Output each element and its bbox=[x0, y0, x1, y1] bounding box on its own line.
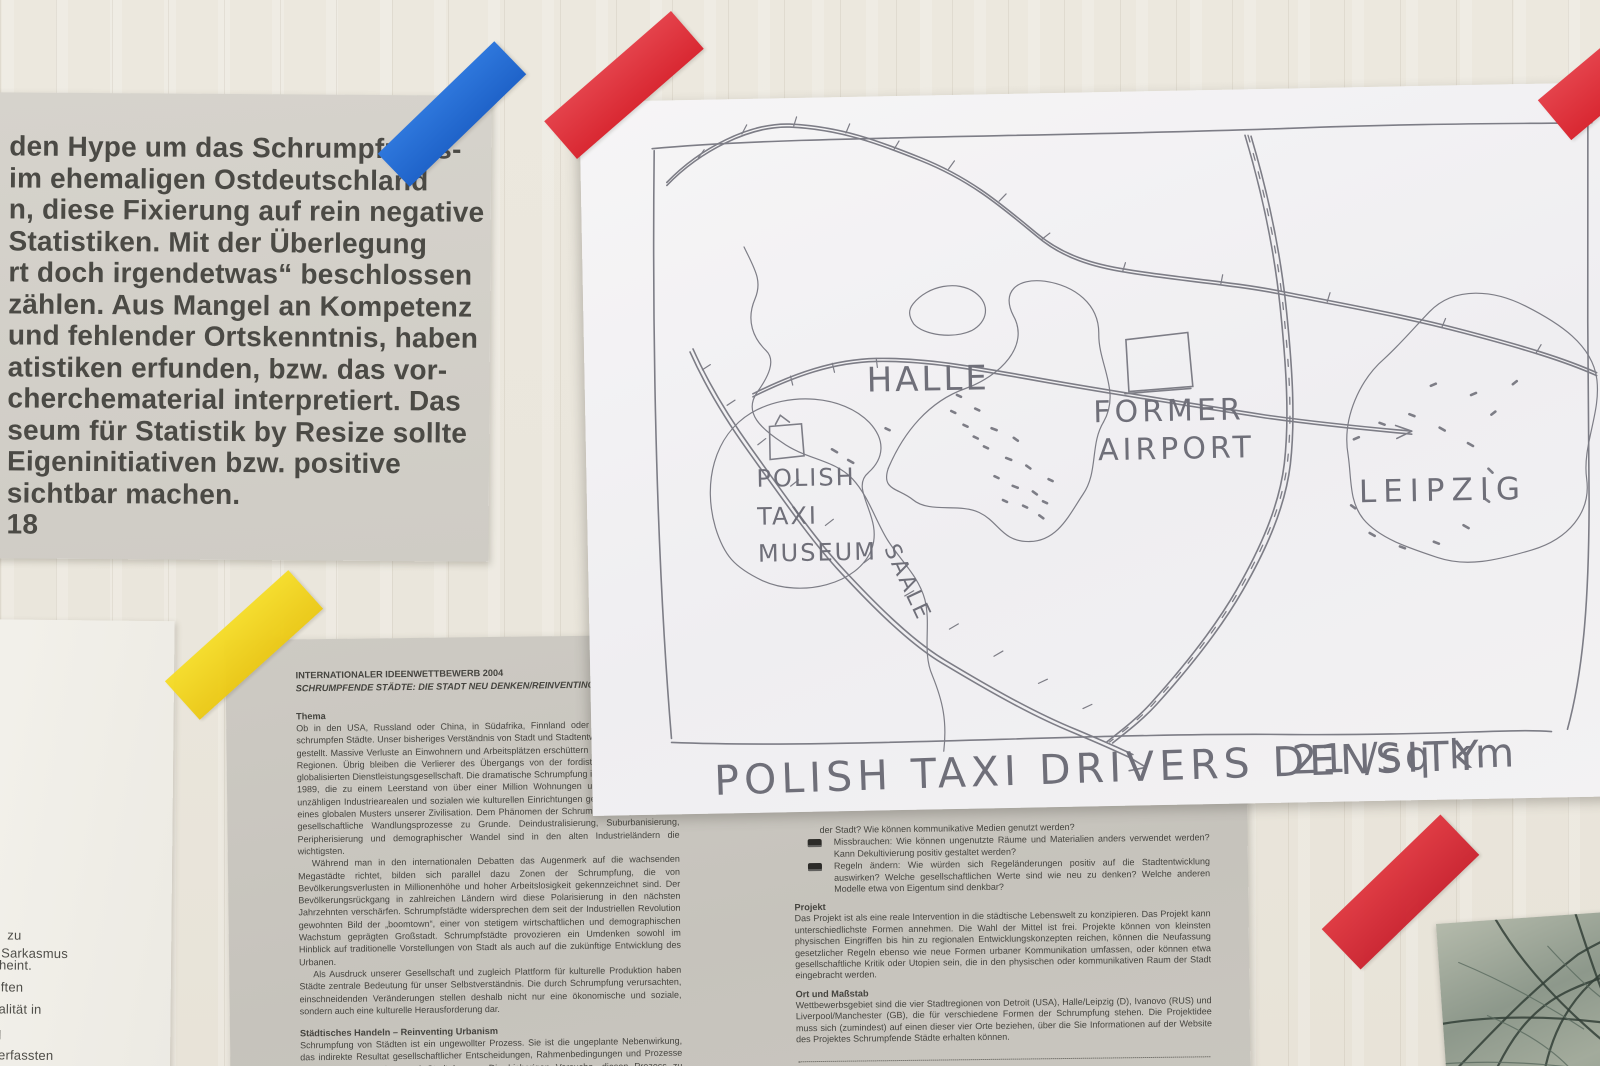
note-line: rt doch irgendetwas“ beschlossen bbox=[8, 256, 484, 291]
label-airport: AIRPORT bbox=[1098, 430, 1256, 468]
brief-right-column: der Stadt? Wie können kommunikative Medi… bbox=[793, 820, 1212, 1066]
bullet-missbrauchen: Missbrauchen: Wie können ungenutzte Räum… bbox=[834, 833, 1210, 860]
tree-photo bbox=[1436, 907, 1600, 1066]
label-museum: MUSEUM bbox=[758, 537, 877, 567]
railway-line bbox=[666, 102, 1597, 394]
hand-drawn-map-svg: HALLE FORMER AIRPORT POLISH TAXI MUSEUM … bbox=[579, 82, 1600, 816]
bullet-regeln: Regeln ändern: Wie würden sich Regelände… bbox=[834, 856, 1210, 895]
halle-dots bbox=[951, 393, 1053, 520]
torn-left-paper: zu Sarkasmus heint. ften alität in l erf… bbox=[0, 619, 175, 1066]
halle-area-outline bbox=[883, 279, 1113, 544]
note-line: und fehlender Ortskenntnis, haben bbox=[8, 319, 484, 354]
label-halle: HALLE bbox=[866, 358, 990, 400]
note-line: sichtbar machen. bbox=[7, 477, 483, 512]
road-to-leipzig bbox=[752, 348, 1412, 451]
railway-ticks bbox=[698, 103, 1542, 369]
handeln-paragraph-1: Schrumpfung von Städten ist ein ungewoll… bbox=[300, 1035, 683, 1066]
map-sketch-paper: HALLE FORMER AIRPORT POLISH TAXI MUSEUM … bbox=[579, 82, 1600, 816]
paper-fragment: ften bbox=[1, 979, 24, 994]
paper-fragment: zu bbox=[7, 927, 21, 942]
note-line: atistiken erfunden, bzw. das vor- bbox=[8, 351, 484, 386]
note-line: cherchematerial interpretiert. Das bbox=[7, 382, 483, 417]
note-line: n, diese Fixierung auf rein negative bbox=[9, 193, 485, 228]
label-former: FORMER bbox=[1093, 392, 1245, 430]
note-text-block: den Hype um das Schrumpfungs- im ehemali… bbox=[7, 130, 485, 543]
leipzig-dots bbox=[1349, 381, 1520, 549]
label-leipzig: LEIPZIG bbox=[1359, 471, 1528, 510]
tree-branches-svg bbox=[1436, 907, 1600, 1066]
paper-fragment: l bbox=[0, 1027, 1, 1042]
note-line: Statistiken. Mit der Überlegung bbox=[8, 225, 484, 260]
label-taxi: TAXI bbox=[756, 502, 818, 531]
list-item: Regeln ändern: Wie würden sich Regelände… bbox=[794, 856, 1210, 895]
paper-fragment: alität in bbox=[0, 1001, 42, 1016]
note-line: seum für Statistik by Resize sollte bbox=[7, 414, 483, 449]
pinboard-wall: zu Sarkasmus heint. ften alität in l erf… bbox=[0, 0, 1600, 1066]
projekt-text: Das Projekt ist als eine reale Intervent… bbox=[795, 909, 1212, 983]
thema-paragraph-3: Als Ausdruck unserer Gesellschaft und zu… bbox=[299, 964, 682, 1018]
caption-density-value: 21 /sq km bbox=[1291, 730, 1518, 783]
paper-fragment: heint. bbox=[0, 957, 32, 972]
airport-square bbox=[1124, 332, 1193, 393]
saale-river bbox=[744, 243, 945, 755]
list-bullet-icon bbox=[808, 839, 822, 847]
arrowhead bbox=[1396, 425, 1412, 438]
thema-paragraph-2: Während man in den internationalen Debat… bbox=[298, 853, 681, 968]
note-line: zählen. Aus Mangel an Kompetenz bbox=[8, 288, 484, 323]
label-polish: POLISH bbox=[756, 463, 856, 493]
list-bullet-icon bbox=[808, 863, 822, 871]
note-line: 18 bbox=[7, 508, 483, 543]
paper-fragment: erfassten bbox=[0, 1047, 53, 1063]
railway-ticks bbox=[702, 357, 1092, 715]
ort-text: Wettbewerbsgebiet sind die vier Stadtreg… bbox=[796, 995, 1213, 1046]
label-saale-river: SAALE bbox=[878, 540, 935, 624]
note-line: Eigeninitiativen bzw. positive bbox=[7, 445, 483, 480]
